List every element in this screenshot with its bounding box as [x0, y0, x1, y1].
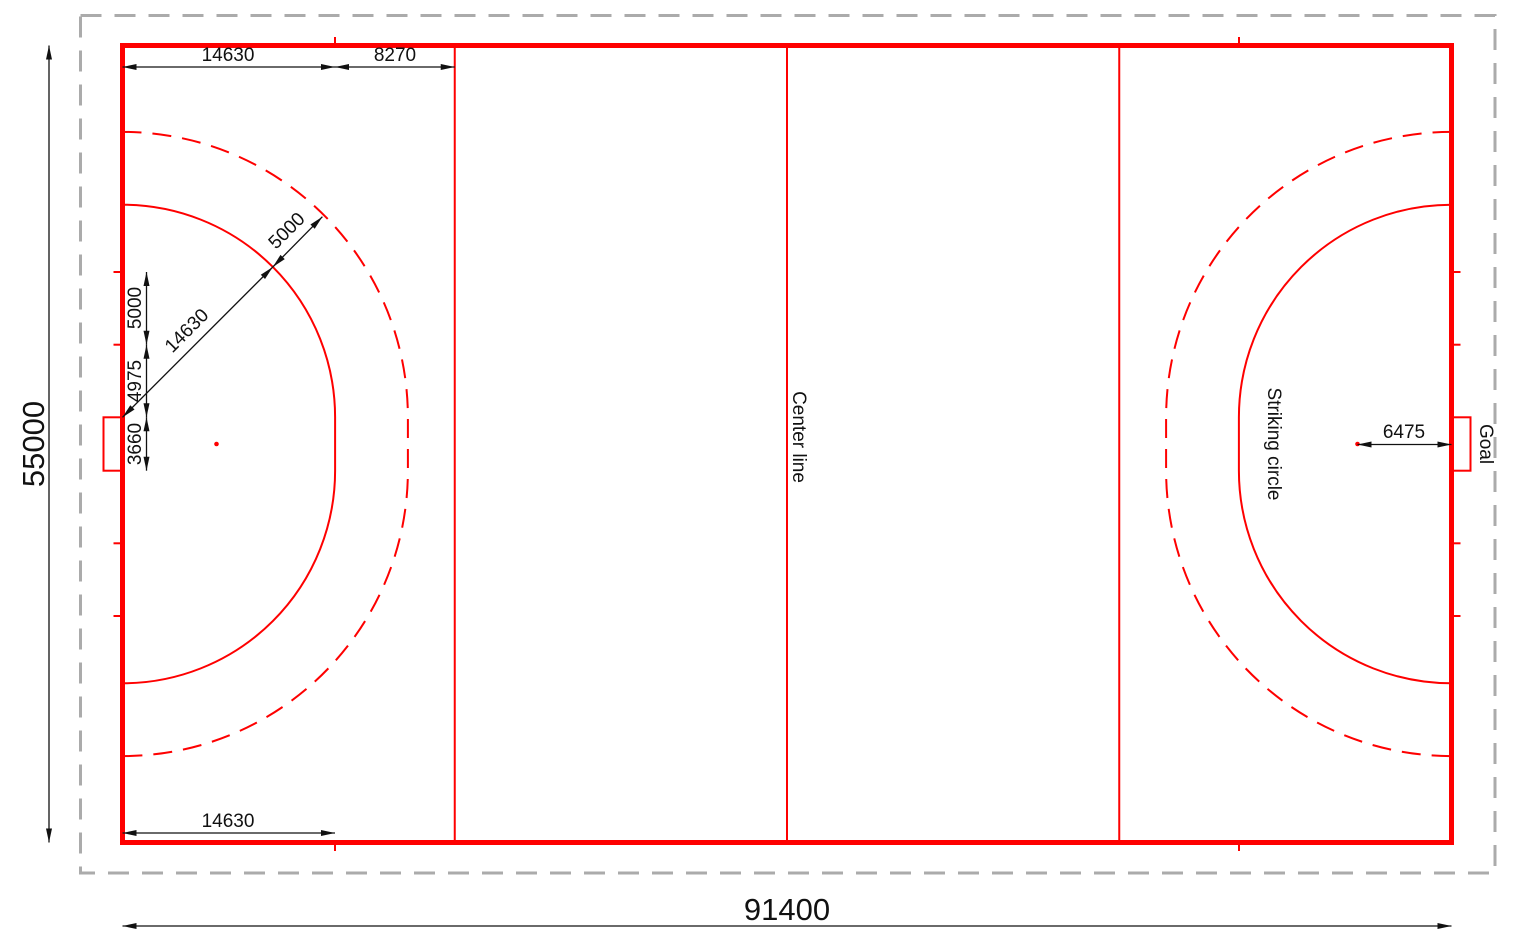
dim-label-diag-14630: 14630 [161, 305, 213, 357]
dim-label-6475: 6475 [1383, 422, 1425, 443]
dim-label-chain-3660: 3660 [125, 423, 146, 465]
goal-label: Goal [1475, 424, 1496, 464]
dim-label-chain-5000: 5000 [125, 287, 146, 329]
pitch-plan-svg: 14630 8270 14630 5000 5000 4975 3660 146… [0, 0, 1524, 939]
dim-label-top-8270: 8270 [374, 45, 416, 66]
dimension-lines [49, 46, 1452, 927]
left-goal [104, 417, 123, 470]
dim-label-diag-5000: 5000 [265, 209, 310, 254]
dim-label-top-14630: 14630 [202, 45, 255, 66]
right-goal [1452, 417, 1471, 470]
left-striking-circle [123, 205, 336, 684]
left-penalty-spot [214, 442, 219, 447]
dim-label-bottom-14630: 14630 [202, 811, 255, 832]
dim-label-91400: 91400 [744, 892, 830, 927]
center-line-label: Center line [788, 391, 809, 483]
left-broken-circle [123, 132, 408, 756]
striking-circle-label: Striking circle [1263, 388, 1284, 501]
dim-label-chain-4975: 4975 [125, 360, 146, 402]
drawing-canvas: 14630 8270 14630 5000 5000 4975 3660 146… [0, 0, 1524, 939]
dim-label-55000: 55000 [16, 401, 51, 487]
